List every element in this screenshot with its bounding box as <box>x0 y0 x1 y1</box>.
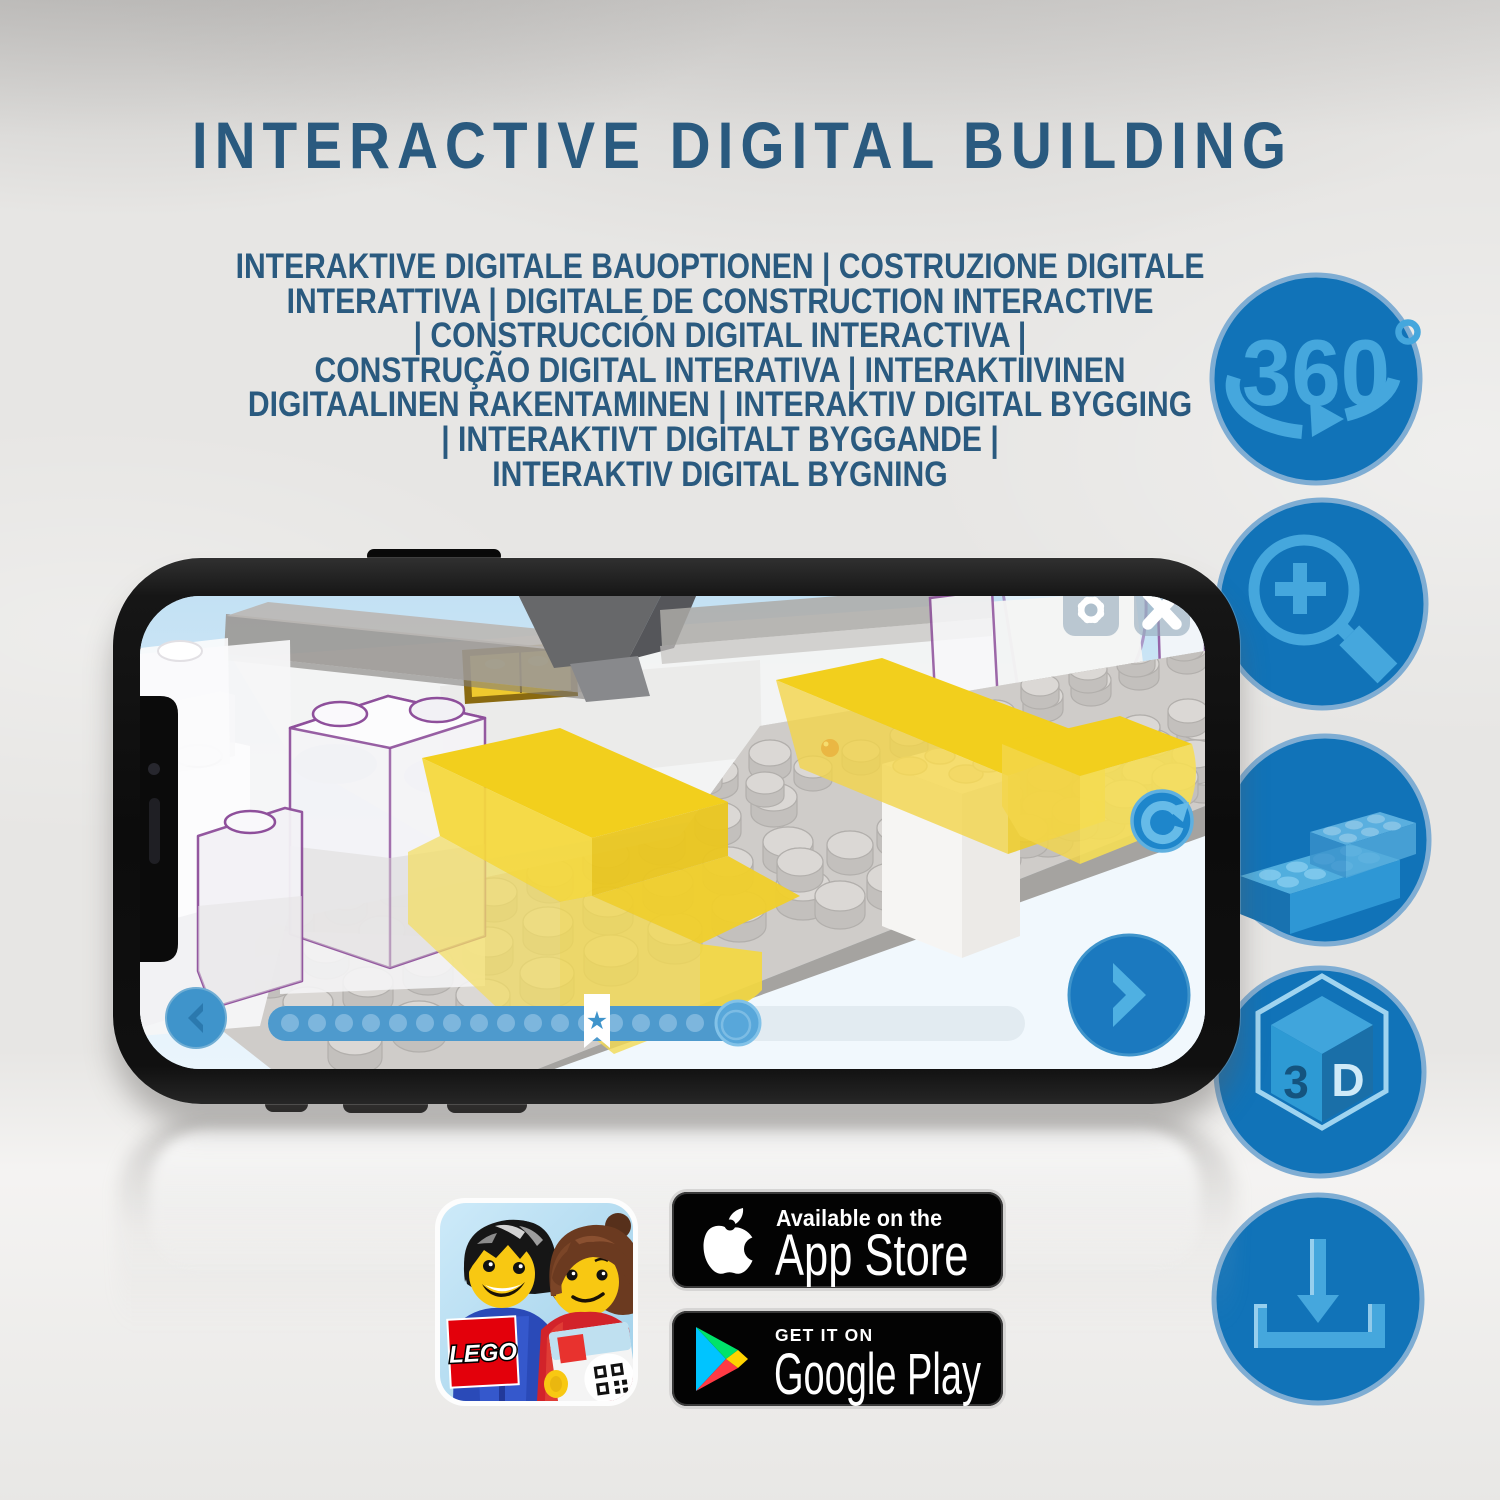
svg-text:3: 3 <box>1283 1056 1309 1108</box>
svg-text:D: D <box>1331 1054 1364 1106</box>
svg-text:LEGO: LEGO <box>448 1338 518 1369</box>
svg-text:★: ★ <box>586 1007 608 1035</box>
